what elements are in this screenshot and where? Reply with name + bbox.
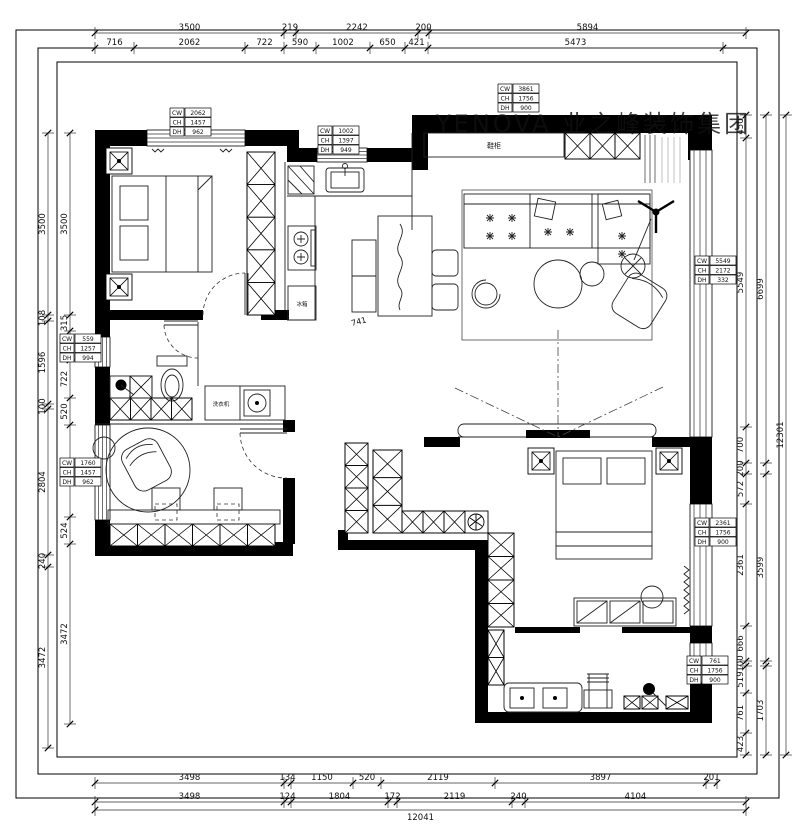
tag-field-label: DH (320, 147, 329, 154)
tag-field-label: CH (173, 120, 182, 127)
tag-field-value: 962 (192, 129, 204, 136)
dimension-label: 240 (38, 553, 48, 569)
hatched-cabinet (345, 443, 368, 533)
dimension-label: 520 (359, 773, 375, 783)
dimension-label: 219 (282, 23, 298, 33)
dim-chain-left-inner: 350031555972252017605243472 (60, 130, 76, 727)
tag-field-value: 559 (82, 336, 94, 343)
dim-chain-bottom-outer: 3498124180417221192404104 (92, 792, 749, 808)
dim-chain-bottom-inner: 3498134115052021193897201 (92, 773, 720, 789)
dimension-label: 4104 (625, 792, 647, 802)
hatched-cabinet (402, 511, 465, 533)
dimension-label: 134 (279, 773, 295, 783)
tag-field-label: DH (697, 277, 706, 284)
tag-field-label: DH (62, 355, 71, 362)
dimension-label: 700 (736, 437, 746, 453)
tag-field-value: 1756 (715, 530, 730, 537)
tag-field-label: CW (320, 128, 330, 135)
tag-field-label: CH (501, 96, 510, 103)
entry-cabinet-label: 鞋柜 (487, 141, 501, 150)
tag-field-value: 1457 (190, 120, 205, 127)
armchair (609, 270, 671, 332)
dimension-label: 572 (736, 481, 746, 497)
kitchen-fixtures (287, 164, 412, 321)
tag-field-value: 3861 (518, 86, 533, 93)
washer-label: 洗衣机 (213, 400, 230, 408)
dim-chain-left-outer: 3500108159610028042403472 (38, 130, 54, 751)
watermark: YENOVA 业之峰装饰集团 (435, 110, 751, 138)
dimension-label: 1150 (311, 773, 333, 783)
window-tag-kitchen-window: CW1002CH1397DH949 (318, 126, 359, 154)
floorplan-drawing: 3500219224220058947162062722590100265042… (0, 0, 793, 825)
dimension-label: 1596 (38, 352, 48, 374)
tag-field-label: CH (63, 470, 72, 477)
floor-lamp (621, 219, 651, 278)
tag-field-value: 2361 (715, 520, 730, 527)
dimension-label: 3500 (179, 23, 201, 33)
study-furniture (93, 428, 280, 524)
dimension-label: 5549 (736, 272, 746, 294)
dim-chain-bottom-total: 12041 (92, 804, 749, 823)
toilet (157, 356, 187, 401)
dim-chain-right-total: 12301 (776, 112, 792, 758)
dimension-label: 722 (60, 371, 70, 387)
dimension-label: 200 (736, 460, 746, 476)
window-tag-study-window: CW1760CH1457DH962 (60, 458, 101, 486)
window-tag-master-bath-window: CW761CH1756DH900 (687, 656, 728, 684)
tv-cabinet (458, 424, 656, 438)
dimension-label: 3500 (38, 213, 48, 235)
dimension-label: 5473 (565, 38, 587, 48)
bath-chair (584, 674, 612, 708)
tag-field-label: CW (697, 520, 707, 527)
window-tag-master-window: CW2361CH1756DH900 (695, 518, 736, 546)
living-room-furniture (455, 190, 674, 438)
tag-field-label: CH (690, 668, 699, 675)
hatched-cabinet (488, 533, 514, 627)
hatched-cabinet (110, 524, 275, 546)
tag-field-label: DH (697, 539, 706, 546)
tag-field-value: 2062 (190, 110, 205, 117)
dimension-label: 590 (292, 38, 308, 48)
dimension-label: 1703 (756, 700, 766, 722)
tag-field-label: CH (698, 268, 707, 275)
dimension-label: 240 (510, 792, 526, 802)
dimension-label: 172 (384, 792, 400, 802)
hatched-cabinet (666, 696, 688, 709)
tag-field-label: CW (697, 258, 707, 265)
tag-field-label: DH (172, 129, 181, 136)
tag-field-label: CW (62, 336, 72, 343)
tag-field-label: CH (698, 530, 707, 537)
bedroom-furniture (112, 176, 212, 272)
dimension-label: 1804 (329, 792, 351, 802)
dimension-label: 519 (736, 671, 746, 687)
tag-field-label: CW (689, 658, 699, 665)
tag-field-value: 2172 (715, 268, 730, 275)
bathroom-door (164, 321, 198, 358)
dimension-label: 2119 (444, 792, 466, 802)
hatched-cabinet (373, 450, 402, 533)
study-door (240, 429, 287, 478)
dimension-label: 12041 (407, 813, 434, 823)
tag-field-value: 1457 (80, 470, 95, 477)
sofa (464, 194, 650, 264)
dim-chain-top-inner: 716206272259010026504215473 (92, 38, 726, 54)
hatched-cabinet (488, 630, 504, 685)
partition-lines (95, 133, 654, 437)
dimension-label: 6699 (756, 278, 766, 300)
dim-chain-right-mid: 669935991703 (756, 112, 772, 758)
window-tag-bedroom-window: CW2062CH1457DH962 (170, 108, 211, 136)
dimension-label: 3498 (179, 792, 201, 802)
window-tag-living-window: CW5549CH2172DH332 (695, 256, 736, 284)
dimension-label: 421 (408, 38, 424, 48)
dimension-label: 650 (379, 38, 395, 48)
living-window (690, 150, 712, 437)
hatched-cabinet (642, 696, 658, 709)
tag-field-label: CH (321, 138, 330, 145)
dimension-label: 1002 (332, 38, 354, 48)
dimension-label: 3500 (60, 213, 70, 235)
sink (326, 164, 364, 193)
tag-field-value: 1760 (80, 460, 95, 467)
tag-field-label: CH (63, 346, 72, 353)
dimension-label: 124 (279, 792, 295, 802)
kitchen-appliance-label: 冰箱 (296, 300, 308, 308)
dimension-label: 2119 (427, 773, 449, 783)
dimension-label: 2242 (346, 23, 368, 33)
plant-symbol (465, 511, 488, 533)
double-vanity (504, 683, 582, 712)
dimension-label: 3472 (38, 647, 48, 669)
tag-field-value: 1756 (707, 668, 722, 675)
dining-furniture (352, 216, 458, 316)
ceiling-fan (638, 201, 674, 233)
dimension-label: 3599 (756, 557, 766, 579)
dimension-label: 2062 (179, 38, 201, 48)
dimension-label: 716 (106, 38, 122, 48)
dimension-label: 5894 (577, 23, 599, 33)
tag-field-label: CW (500, 86, 510, 93)
dimension-label: 666 (736, 635, 746, 651)
dimension-label: 12301 (776, 421, 786, 448)
stove (288, 226, 316, 270)
hatched-cabinet (247, 152, 275, 315)
tag-field-label: CW (62, 460, 72, 467)
tag-field-value: 761 (709, 658, 721, 665)
dimension-label: 722 (256, 38, 272, 48)
dimension-label: 100 (38, 398, 48, 414)
dimension-label: 108 (38, 310, 48, 326)
master-bedroom-furniture (556, 451, 689, 626)
dimension-label: 524 (60, 522, 70, 538)
dimension-label: 200 (415, 23, 431, 33)
dimension-label: 2804 (38, 471, 48, 493)
tag-field-label: DH (62, 479, 71, 486)
dim-chain-right-inner: 45055497002005722361666100519761423 (736, 112, 752, 758)
bedroom-door (203, 273, 248, 315)
hatched-cabinet (624, 696, 640, 709)
tag-field-label: CW (172, 110, 182, 117)
tag-field-value: 900 (709, 677, 721, 684)
dimension-label: 201 (703, 773, 719, 783)
dimension-label: 315 (60, 315, 70, 331)
floorplan-sheet: 3500219224220058947162062722590100265042… (0, 0, 793, 825)
interior-dimension-741: 741 (350, 316, 367, 328)
dimension-label: 520 (60, 403, 70, 419)
hatched-cabinet (110, 398, 192, 420)
tag-field-label: DH (689, 677, 698, 684)
dresser (574, 586, 676, 626)
window-tag-left-small-window: CW559CH1257DH994 (60, 334, 101, 362)
dimension-label: 3498 (179, 773, 201, 783)
dimension-label: 3472 (60, 623, 70, 645)
tag-field-value: 900 (717, 539, 729, 546)
tag-field-value: 994 (82, 355, 94, 362)
tag-field-value: 962 (82, 479, 94, 486)
tag-field-value: 1257 (80, 346, 95, 353)
tag-field-value: 1756 (518, 96, 533, 103)
tag-field-value: 5549 (715, 258, 730, 265)
dim-chain-top-outer: 350021922422005894 (92, 23, 749, 39)
tag-field-value: 949 (340, 147, 352, 154)
entry-porch (424, 133, 680, 183)
tag-field-value: 1002 (338, 128, 353, 135)
dimension-label: 423 (736, 736, 746, 752)
tag-field-value: 332 (717, 277, 729, 284)
dimension-label: 3897 (590, 773, 612, 783)
dimension-label: 2361 (736, 554, 746, 576)
tag-field-value: 1397 (338, 138, 353, 145)
dimension-label: 100 (736, 655, 746, 671)
window-tag-entry-window: CW3861CH1756DH900 (498, 84, 539, 112)
dimension-label: 761 (736, 705, 746, 721)
